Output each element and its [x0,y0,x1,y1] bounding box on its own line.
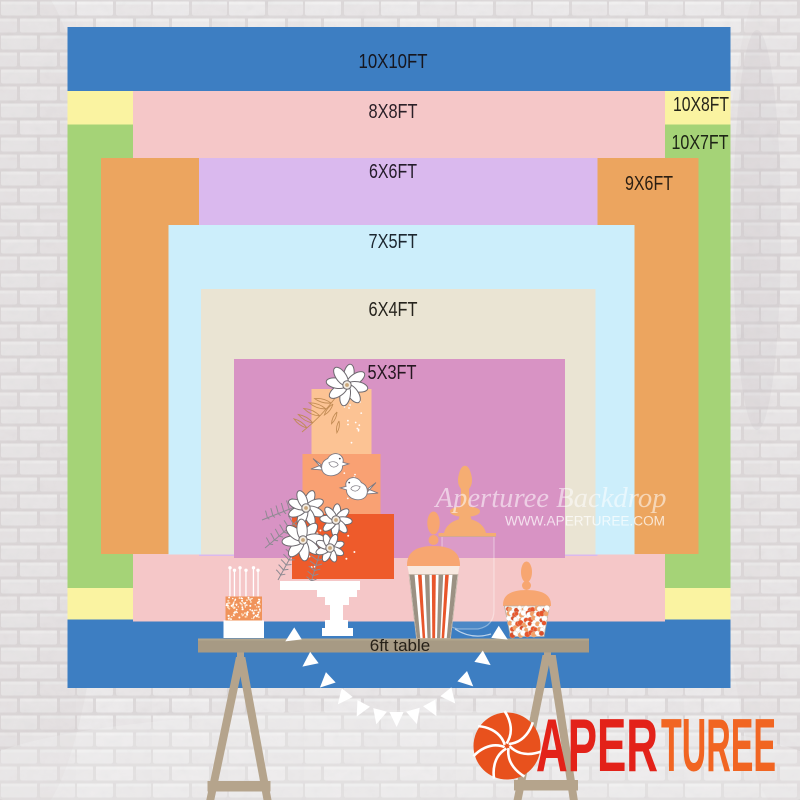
svg-text:10X10FT: 10X10FT [359,51,428,73]
svg-text:5X3FT: 5X3FT [368,362,417,384]
svg-text:7X5FT: 7X5FT [369,231,418,253]
svg-text:APER: APER [536,703,658,787]
svg-text:6X4FT: 6X4FT [369,299,418,321]
svg-text:10X7FT: 10X7FT [672,132,729,154]
svg-text:9X6FT: 9X6FT [625,173,673,195]
svg-text:Aperturee Backdrop: Aperturee Backdrop [433,483,666,514]
svg-text:6ft table: 6ft table [370,636,431,655]
svg-text:6X6FT: 6X6FT [369,161,417,183]
svg-text:8X8FT: 8X8FT [369,101,418,123]
svg-text:WWW.APERTUREE.COM: WWW.APERTUREE.COM [505,514,665,529]
svg-text:TUREE: TUREE [661,703,776,787]
svg-text:10X8FT: 10X8FT [673,94,729,116]
